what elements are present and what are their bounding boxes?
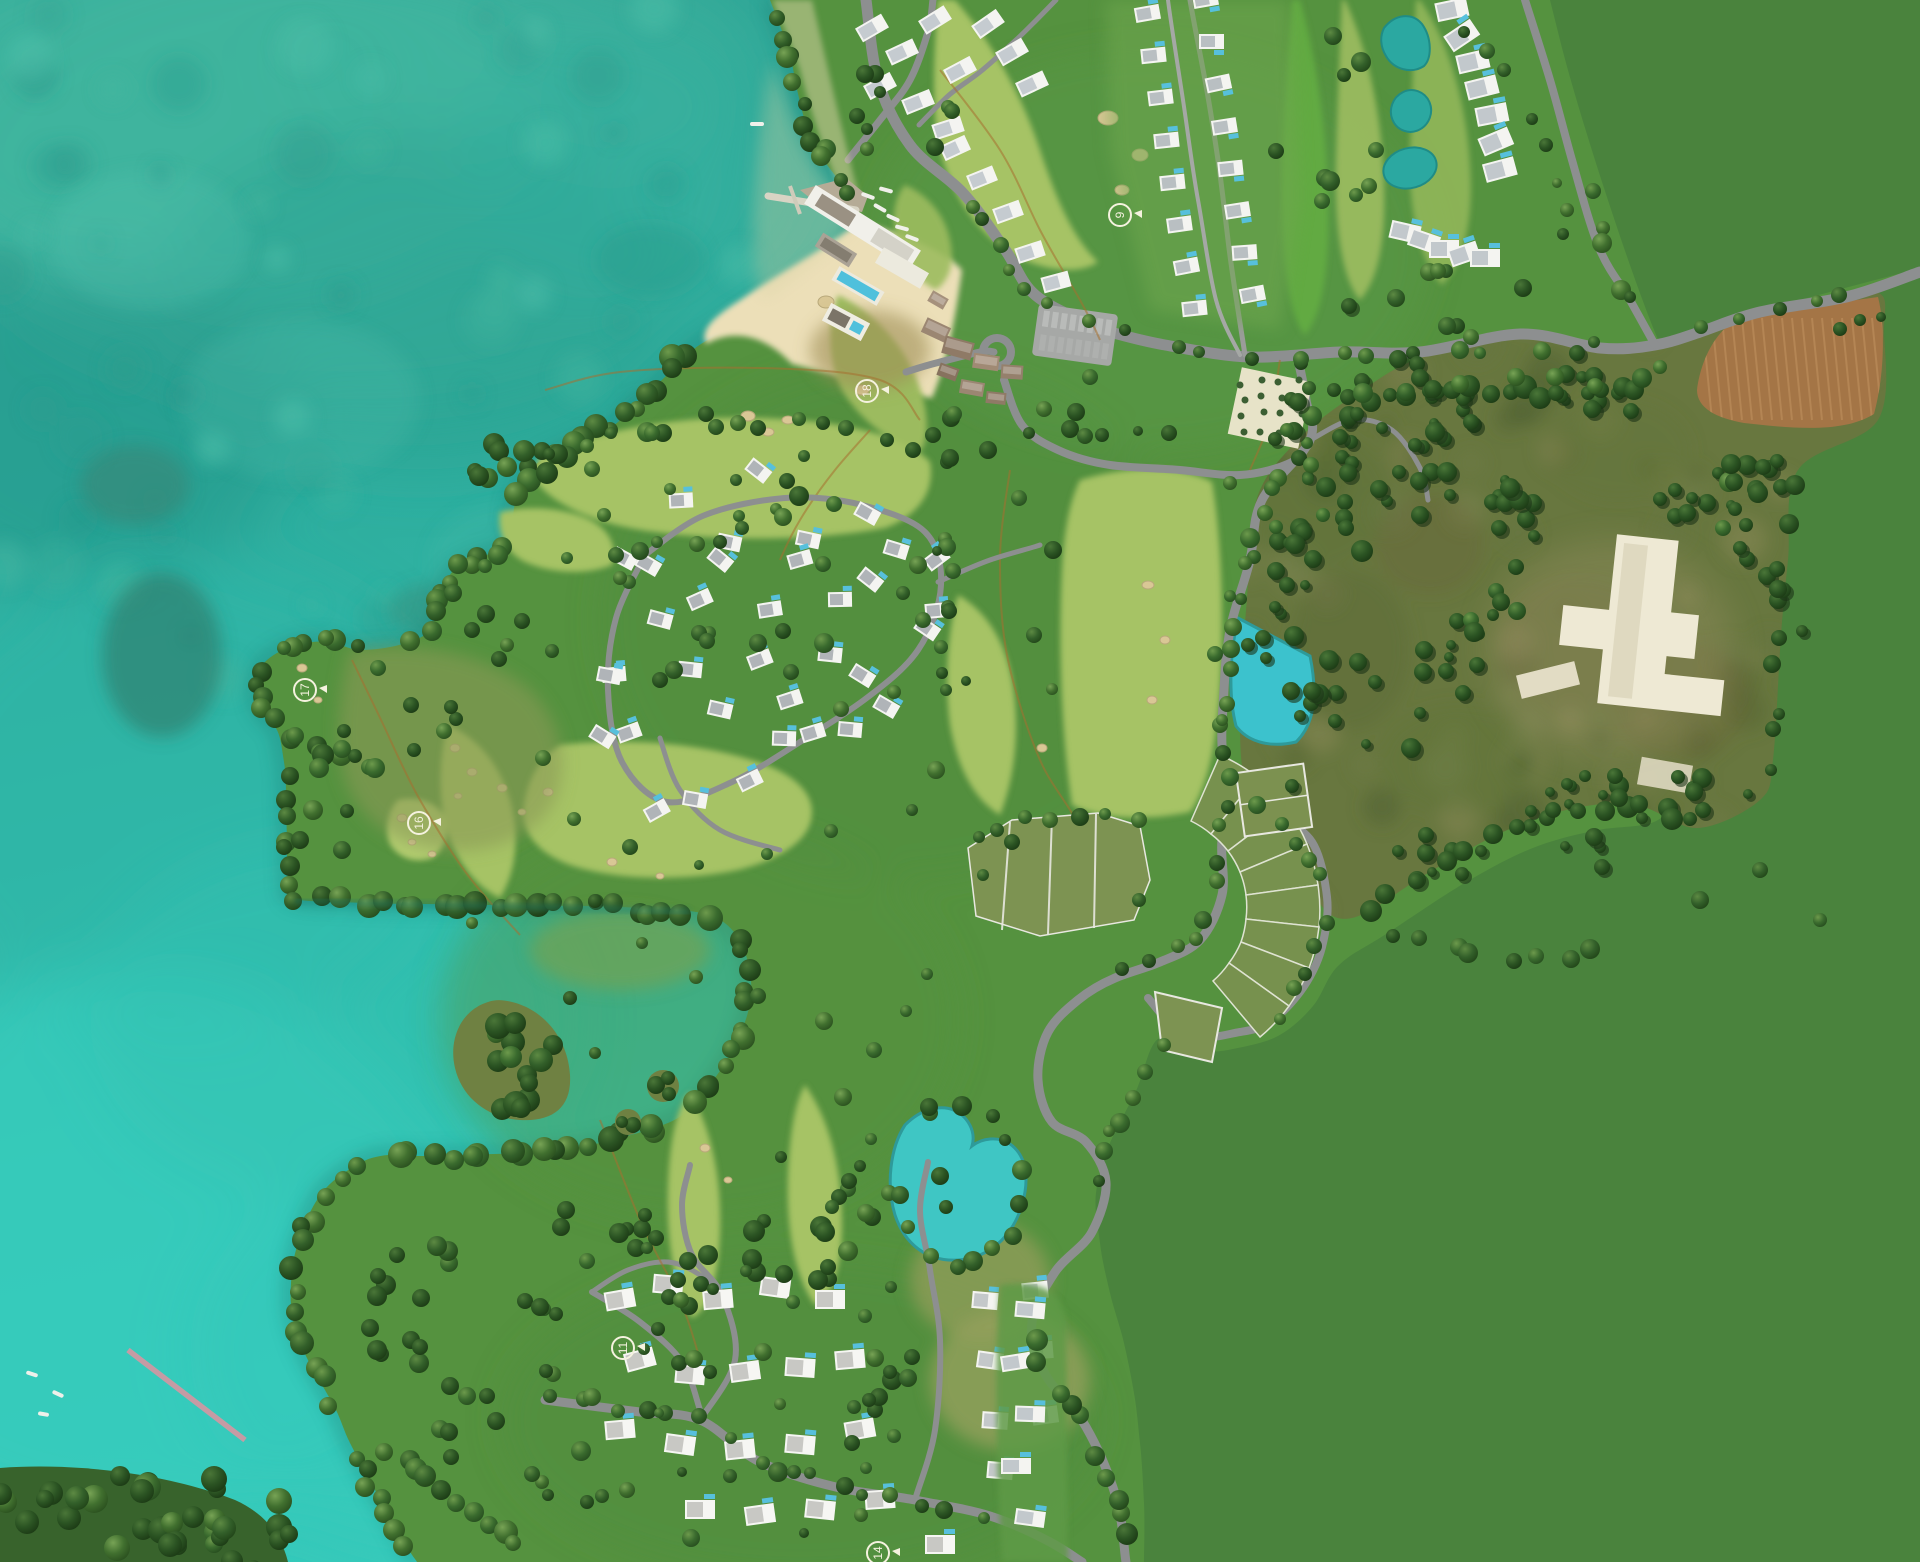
svg-text:17: 17 bbox=[298, 683, 312, 697]
svg-text:18: 18 bbox=[860, 384, 874, 398]
svg-text:11: 11 bbox=[616, 1341, 630, 1354]
svg-text:14: 14 bbox=[871, 1546, 885, 1560]
svg-text:9: 9 bbox=[1113, 211, 1127, 218]
svg-text:16: 16 bbox=[412, 816, 426, 830]
